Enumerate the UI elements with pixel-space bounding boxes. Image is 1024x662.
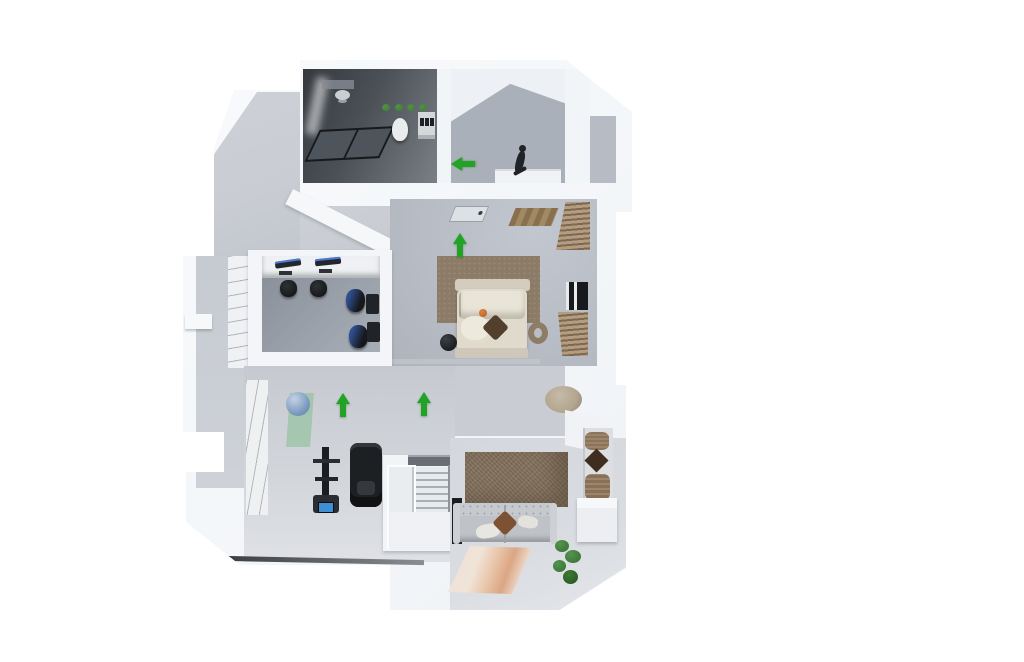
arrow-stem bbox=[340, 404, 346, 417]
building-plate bbox=[180, 56, 640, 616]
bedroom-entry-arrow bbox=[453, 233, 467, 257]
arrow-head bbox=[451, 157, 462, 171]
hallway-arrow-right bbox=[417, 392, 431, 416]
arrow-stem bbox=[462, 161, 475, 167]
landing-direction-arrow bbox=[451, 157, 475, 171]
direction-arrow-layer bbox=[180, 56, 640, 616]
arrow-head bbox=[336, 393, 350, 404]
apartment-3d-floorplan: { "scene": { "type": "3d-floorplan-rende… bbox=[0, 0, 1024, 662]
arrow-stem bbox=[421, 403, 427, 416]
arrow-head bbox=[417, 392, 431, 403]
arrow-head bbox=[453, 233, 467, 244]
hallway-arrow-left bbox=[336, 393, 350, 417]
arrow-stem bbox=[457, 244, 463, 257]
